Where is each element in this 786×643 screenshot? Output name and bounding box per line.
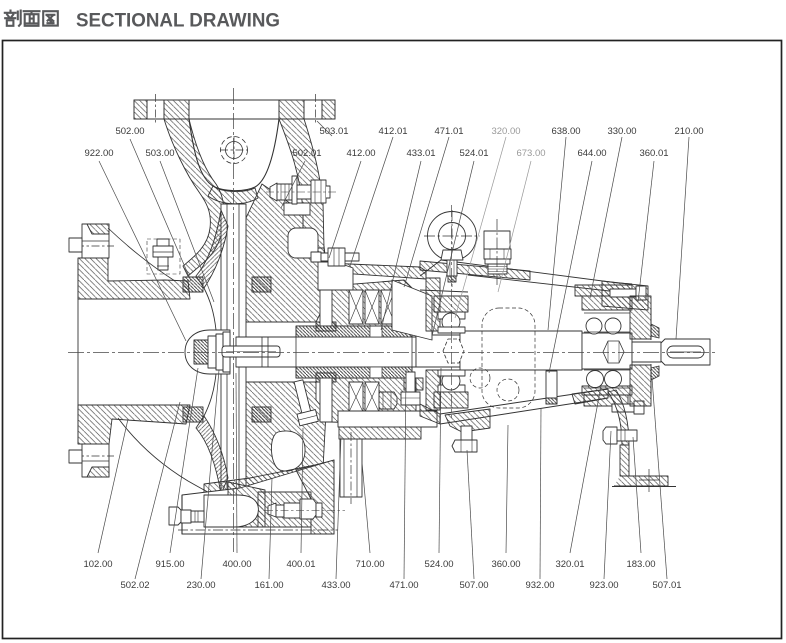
svg-text:SECTIONAL DRAWING: SECTIONAL DRAWING [76,11,280,32]
svg-text:502.00: 502.00 [115,126,144,137]
svg-text:400.01: 400.01 [286,559,315,570]
svg-text:400.00: 400.00 [222,559,251,570]
svg-text:433.00: 433.00 [321,580,350,591]
svg-text:320.00: 320.00 [491,126,520,137]
svg-text:507.01: 507.01 [652,580,681,591]
svg-text:673.00: 673.00 [516,148,545,159]
svg-text:932.00: 932.00 [525,580,554,591]
svg-text:360.00: 360.00 [491,559,520,570]
svg-text:161.00: 161.00 [254,580,283,591]
svg-text:524.00: 524.00 [424,559,453,570]
svg-text:503.00: 503.00 [145,148,174,159]
svg-text:320.01: 320.01 [555,559,584,570]
svg-text:507.00: 507.00 [459,580,488,591]
svg-text:210.00: 210.00 [674,126,703,137]
svg-text:502.02: 502.02 [120,580,149,591]
svg-text:503.01: 503.01 [319,126,348,137]
svg-text:638.00: 638.00 [551,126,580,137]
svg-text:915.00: 915.00 [155,559,184,570]
svg-text:922.00: 922.00 [84,148,113,159]
svg-text:502.01: 502.01 [292,148,321,159]
svg-text:524.01: 524.01 [459,148,488,159]
svg-text:412.01: 412.01 [378,126,407,137]
svg-text:433.01: 433.01 [406,148,435,159]
svg-text:471.01: 471.01 [434,126,463,137]
svg-text:183.00: 183.00 [626,559,655,570]
svg-text:710.00: 710.00 [355,559,384,570]
svg-text:923.00: 923.00 [589,580,618,591]
svg-text:360.01: 360.01 [639,148,668,159]
svg-text:412.00: 412.00 [346,148,375,159]
svg-text:230.00: 230.00 [186,580,215,591]
svg-text:471.00: 471.00 [389,580,418,591]
svg-text:102.00: 102.00 [83,559,112,570]
svg-text:330.00: 330.00 [607,126,636,137]
svg-text:644.00: 644.00 [577,148,606,159]
